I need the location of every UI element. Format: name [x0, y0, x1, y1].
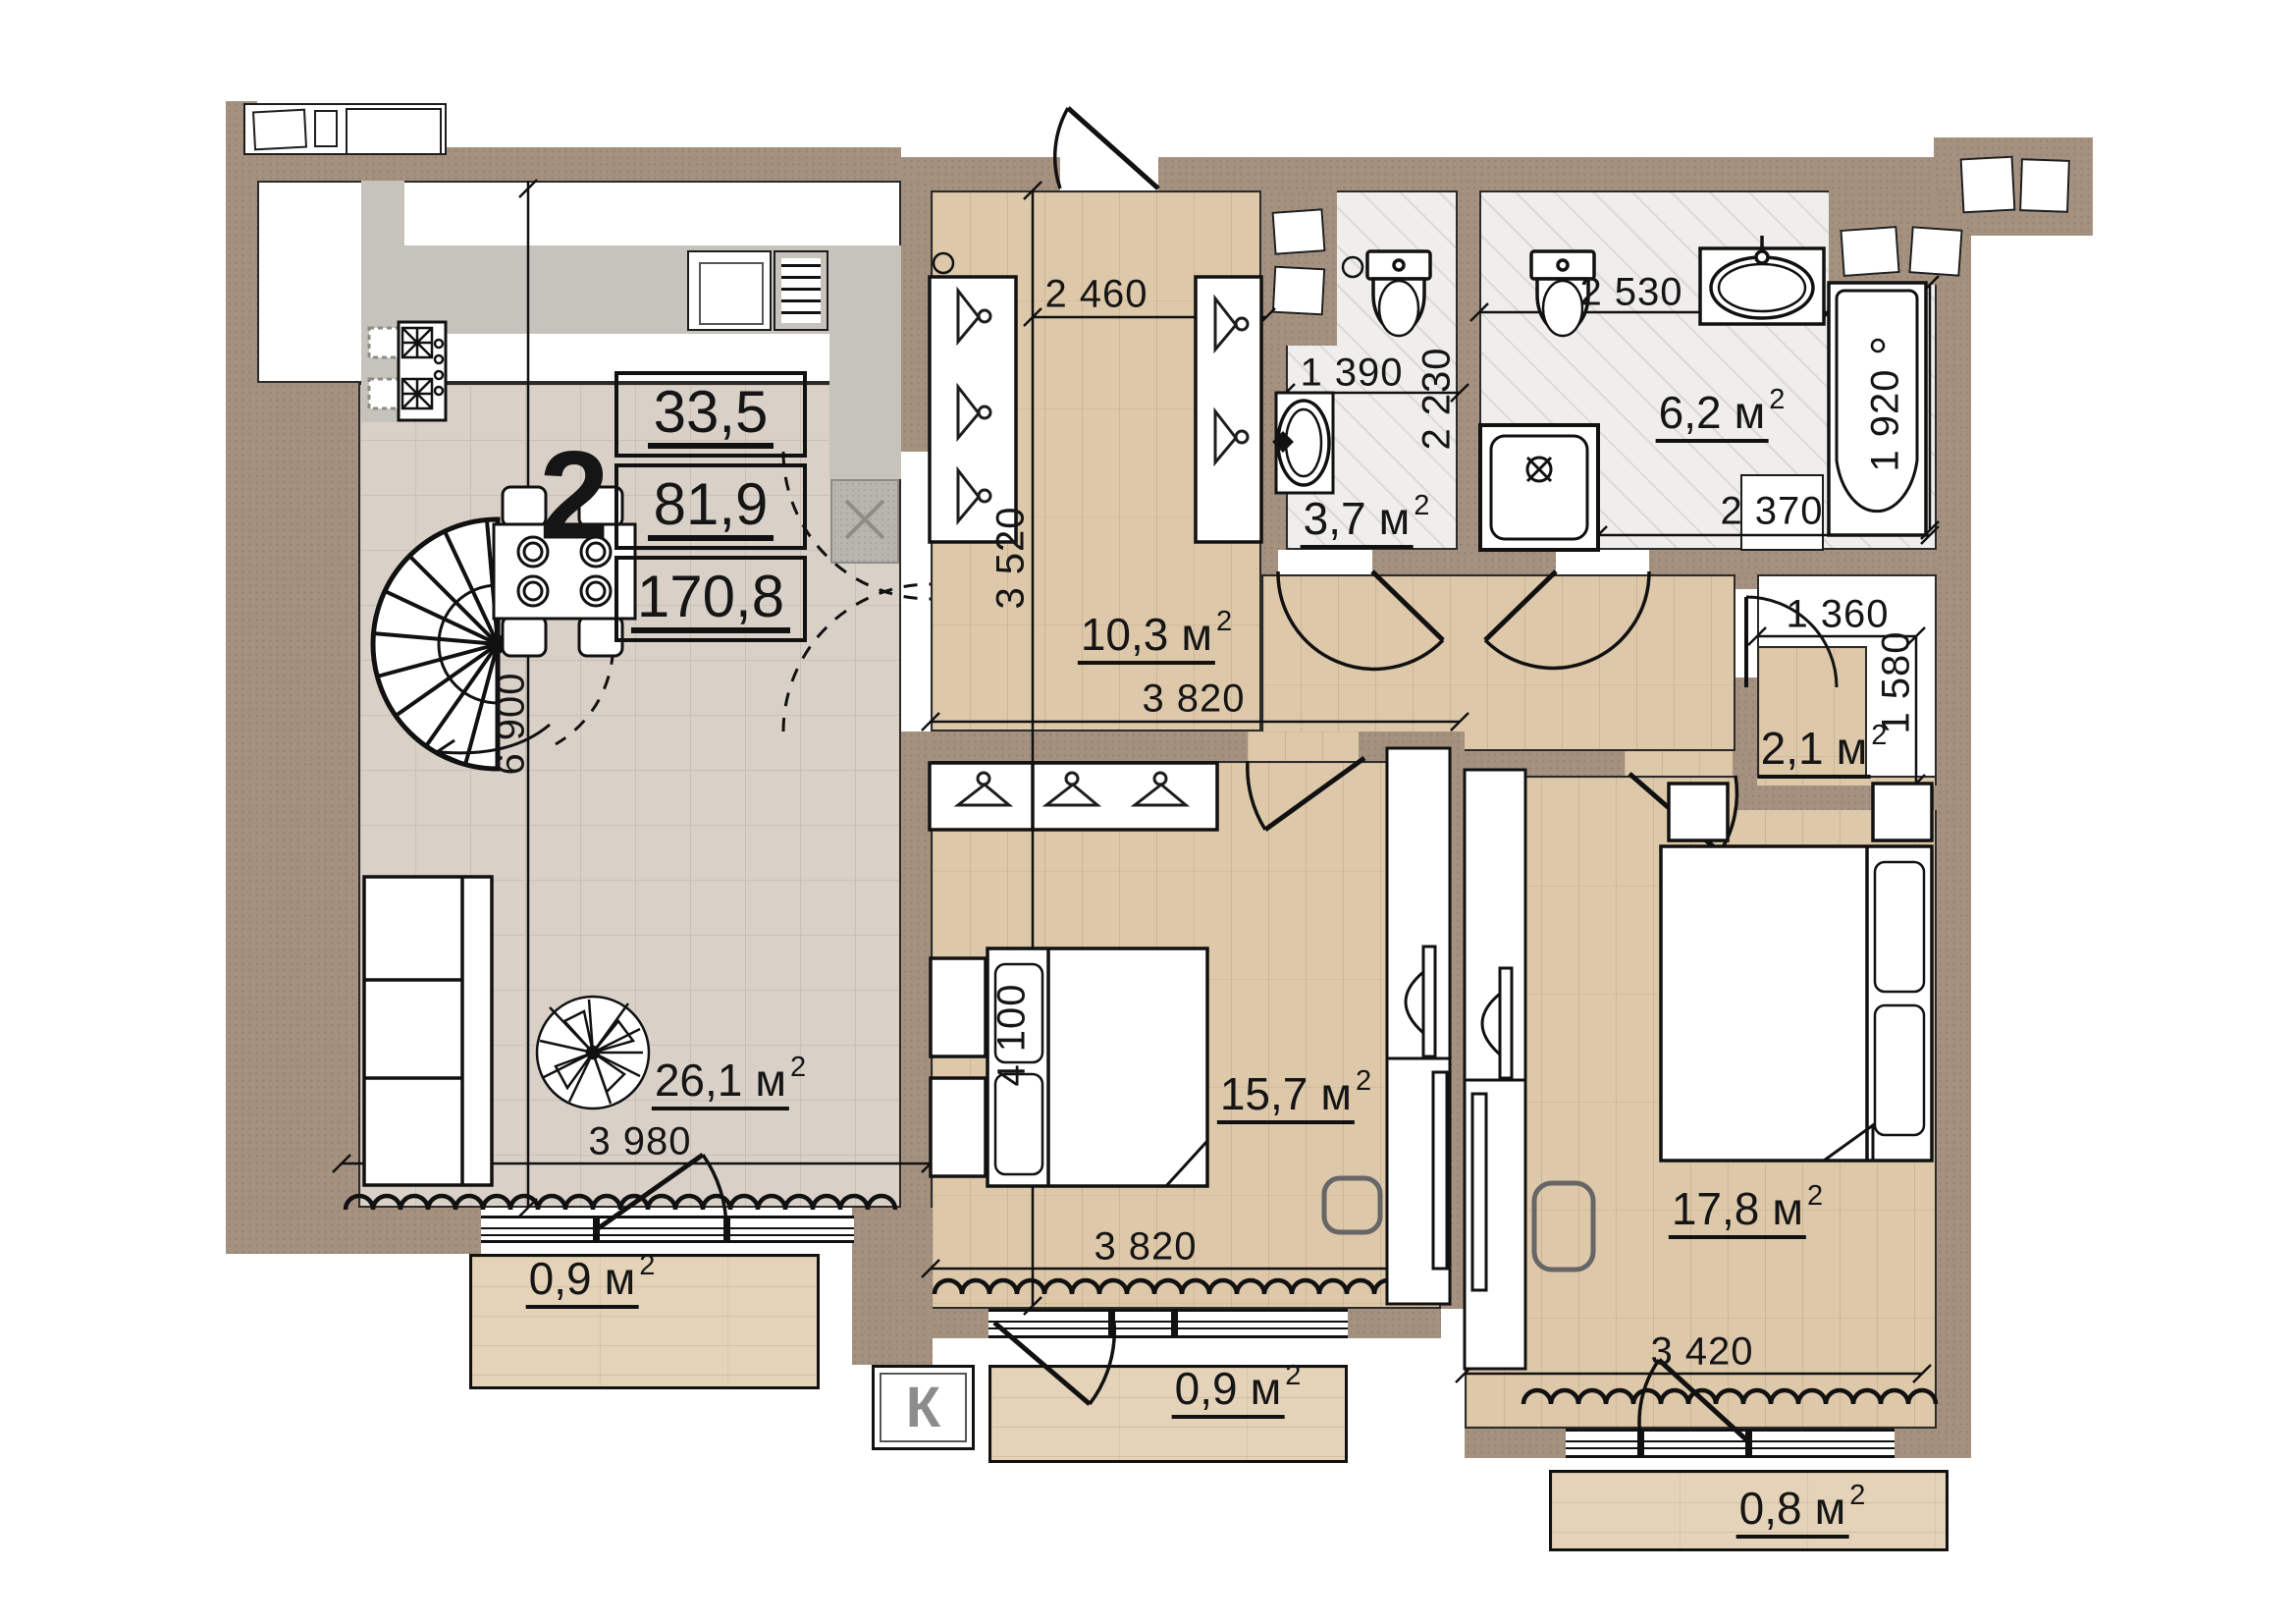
- dim-bath-large-bottom: 2 370: [1720, 490, 1823, 534]
- dim-bedroom-1-width: 3 820: [1094, 1225, 1197, 1270]
- dim-living-width: 3 980: [588, 1120, 691, 1164]
- sink-icon: [1275, 393, 1333, 493]
- room-area-bedroom-1: 15,7м2: [1217, 1067, 1370, 1120]
- balcony-door-living: [597, 1155, 726, 1229]
- dim-bath-small-width: 1 390: [1300, 352, 1403, 396]
- entry-door: [1055, 108, 1158, 189]
- radiator-wave-bedroom-2: [1523, 1390, 1936, 1404]
- sofa: [364, 877, 492, 1185]
- wardrobe-left: [930, 253, 1016, 542]
- plant-icon: [537, 997, 649, 1109]
- unit-number: 2: [539, 424, 609, 568]
- bed-bedroom-1: [931, 948, 1207, 1186]
- room-area-balcony-right: 0,8м2: [1736, 1482, 1865, 1535]
- pouf-icon: [1534, 1183, 1593, 1270]
- room-area-balcony-left: 0,9м2: [526, 1252, 655, 1305]
- room-area-living: 26,1м2: [652, 1054, 805, 1107]
- room-area-balcony-center: 0,9м2: [1172, 1362, 1301, 1415]
- cooktop-icon: [369, 322, 446, 420]
- unit-area-box-2: 81,9: [614, 463, 807, 550]
- bath-large-door: [1485, 571, 1649, 668]
- balcony-door-bedroom-1: [994, 1323, 1114, 1404]
- dim-living-height: 6 900: [490, 672, 534, 775]
- dim-hall-depth: 3 520: [989, 506, 1034, 609]
- dresser-unit-bedroom-2: [1465, 770, 1525, 1369]
- dim-bath-large-depth: 1 920: [1864, 368, 1908, 471]
- dim-hall-length: 3 820: [1142, 677, 1245, 722]
- dim-closet-depth: 1 580: [1875, 630, 1919, 733]
- room-area-bath-large: 6,2м2: [1656, 386, 1785, 439]
- shower-icon: [1480, 425, 1598, 550]
- room-area-hallway: 10,3м2: [1078, 608, 1231, 661]
- room-area-bath-small: 3,7м2: [1301, 492, 1429, 545]
- pouf-icon: [1324, 1178, 1380, 1232]
- dim-bath-small-depth: 2 230: [1415, 347, 1460, 450]
- unit-area-box-1: 33,5: [614, 371, 807, 458]
- floor-plan: 2 33,5 81,9 170,8 26,1м2 10,3м2 3,7м2 6,…: [0, 0, 2296, 1624]
- unit-area-value: 81,9: [648, 473, 774, 541]
- dim-bath-large-width: 2 530: [1579, 271, 1682, 315]
- unit-area-value: 170,8: [631, 566, 790, 633]
- room-area-closet: 2,1м2: [1758, 722, 1887, 775]
- toilet-icon: [1367, 251, 1430, 336]
- washer-x-mark: [846, 501, 883, 538]
- k-marker-label: К: [880, 1373, 967, 1442]
- dresser-unit-bedroom-1: [1387, 748, 1450, 1304]
- unit-area-value: 33,5: [648, 381, 774, 449]
- bedroom-1-door: [1248, 758, 1364, 830]
- bed-bedroom-2: [1661, 784, 1932, 1161]
- radiator-wave-living: [346, 1196, 895, 1210]
- room-area-bedroom-2: 17,8м2: [1669, 1182, 1822, 1235]
- door-stop-icon: [1343, 257, 1362, 277]
- bath-small-door: [1278, 571, 1443, 669]
- radiator-wave-bedroom-1: [934, 1280, 1429, 1294]
- k-marker-box: К: [872, 1365, 975, 1450]
- dim-bedroom-2-width: 3 420: [1650, 1330, 1753, 1375]
- sink-icon: [1700, 236, 1824, 324]
- dim-bedroom-1-depth: 4 100: [990, 983, 1035, 1086]
- plan-linework: [0, 0, 2296, 1624]
- unit-area-box-3: 170,8: [614, 556, 807, 642]
- dim-hall-entry-width: 2 460: [1044, 273, 1148, 317]
